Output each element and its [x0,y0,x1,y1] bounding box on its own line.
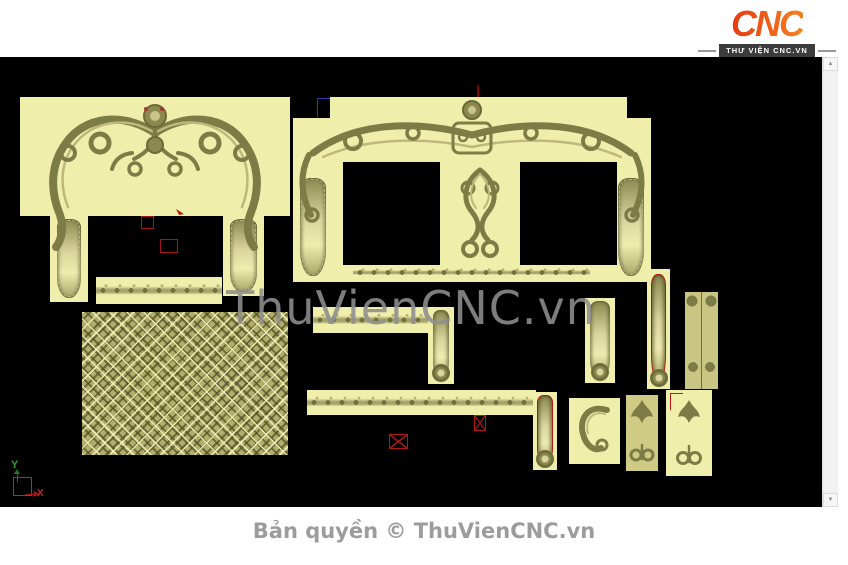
leg-panel-mid-scroll [591,363,609,381]
logo-tagline-row: THƯ VIỆN CNC.VN [698,44,836,57]
small-leg-scroll [536,450,554,468]
top-strip: CNC THƯ VIỆN CNC.VN [0,0,848,57]
app-window: CNC THƯ VIỆN CNC.VN [0,0,848,565]
logo-rule-right [818,50,836,52]
axis-x-line [25,494,34,495]
long-rail[interactable] [307,390,536,415]
axis-x-label: X [37,488,44,499]
cnc-logo-text: CNC [731,4,803,44]
corner-leg-scroll-foot [432,364,450,382]
red-cursor-arrow [175,208,185,220]
palmette-ornament-light [674,396,704,472]
red-selection-square-2 [160,239,178,253]
corner-rail-horizontal[interactable] [313,307,431,333]
red-tick-mark [477,85,479,97]
post-panel[interactable] [685,292,718,389]
red-selection-square-1 [141,216,154,229]
strip-leg-redline[interactable] [647,269,670,389]
bottom-strip: Bản quyền © ThuVienCNC.vn [0,507,848,565]
strip-leg-scroll [650,369,668,387]
c-scroll-ornament [573,402,616,460]
palmette-panel-light[interactable] [666,390,712,476]
red-dot-right [160,107,164,111]
scrollbar-up-button[interactable]: ▲ [823,57,838,71]
headboard-crown-ornament [22,99,288,259]
blue-corner-mark [317,98,330,117]
thuviencnc-logo: CNC THƯ VIỆN CNC.VN [698,4,836,57]
red-x-mark [474,415,486,431]
cad-canvas[interactable]: Y X ThuVienCNC.vn [0,57,822,507]
logo-tagline: THƯ VIỆN CNC.VN [719,44,815,57]
vertical-scrollbar[interactable]: ▲ ▼ [822,57,838,507]
palmette-panel-dark[interactable] [626,395,658,471]
logo-rule-left [698,50,716,52]
scrollbar-down-button[interactable]: ▼ [823,493,838,507]
red-dot-left [144,107,148,111]
red-envelope-mark [389,434,408,449]
ornament-strip-small[interactable] [96,277,222,304]
corner-rail-vertical-leg[interactable] [428,307,454,384]
palmette-ornament-dark [628,397,656,469]
strip-leg-relief [651,274,666,383]
tufted-panel[interactable] [82,312,288,455]
copyright-text: Bản quyền © ThuVienCNC.vn [0,519,848,543]
c-scroll-panel[interactable] [569,398,620,464]
footboard-center-cartouche [440,162,520,265]
footboard-bottom-rail [353,265,590,280]
small-leg-strip[interactable] [533,392,557,470]
leg-panel-mid[interactable] [585,298,615,383]
post-panel-relief [685,292,718,389]
